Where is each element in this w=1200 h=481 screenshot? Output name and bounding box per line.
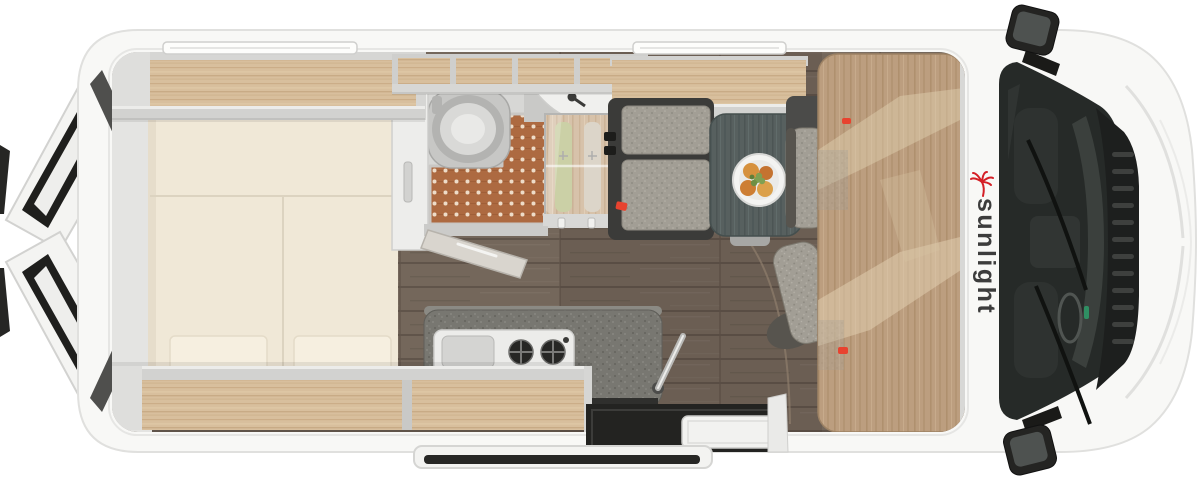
seatbelt-buckle: [604, 146, 616, 155]
wardrobe-hook: [558, 218, 565, 228]
overhead-shelves-bathroom: [392, 54, 648, 95]
seatbelt-buckle: [604, 132, 616, 141]
dinette-bench: [604, 98, 714, 240]
dashboard-item: [1084, 306, 1089, 319]
wardrobe-hook: [588, 218, 595, 228]
toilet: [428, 90, 510, 168]
wardrobe-with-clothes: [543, 114, 613, 228]
food-plate: [733, 154, 785, 206]
entry-partition: [768, 394, 788, 452]
cab-seat-through-glass: [1014, 282, 1058, 378]
sliding-door-open: [414, 446, 712, 468]
camper-floorplan-render: sunlight: [0, 0, 1200, 481]
floorplan-canvas: sunlight: [0, 0, 1200, 481]
logo-text: sunlight: [972, 198, 1000, 315]
overhead-shelf-rear-top: [112, 52, 426, 122]
overhead-shelf-rear-bottom: [112, 362, 592, 432]
sliding-door-window: [424, 455, 700, 464]
cab-roof-panel: [818, 54, 964, 432]
